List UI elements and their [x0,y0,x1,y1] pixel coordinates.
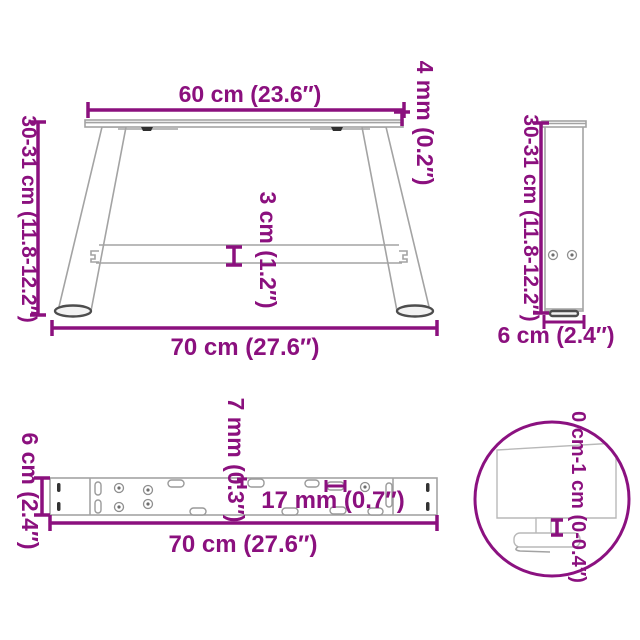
detail-range-label: 0 cm-1 cm (0-0.4″) [567,411,589,583]
detail-view: 0 cm-1 cm (0-0.4″) [475,411,629,583]
front-plate-screw-right [331,127,343,131]
front-top-plate [85,120,403,131]
top-view-slot-height-label: 7 mm (0.3″) [223,398,249,523]
front-left-leg [58,127,126,311]
side-leg-body [545,126,583,311]
side-depth-label: 6 cm (2.4″) [497,322,614,348]
front-left-foot [55,306,91,317]
side-view: 30-31 cm (11.8-12.2″) 6 cm (2.4″) [497,114,614,348]
product-dimension-diagram: 60 cm (23.6″) 4 mm (0.2″) 30-31 cm (11.8… [0,0,640,640]
front-top-width-label: 60 cm (23.6″) [179,81,322,107]
detail-leg-bottom [497,443,616,518]
top-view-length-label: 70 cm (27.6″) [169,531,318,558]
side-height-label: 30-31 cm (11.8-12.2″) [519,114,542,321]
front-view: 60 cm (23.6″) 4 mm (0.2″) 30-31 cm (11.8… [17,61,438,361]
front-crossbar-height-label: 3 cm (1.2″) [255,191,281,308]
top-view-depth-label: 6 cm (2.4″) [17,432,43,549]
diagram-canvas: 60 cm (23.6″) 4 mm (0.2″) 30-31 cm (11.8… [0,0,640,640]
top-view: 6 cm (2.4″) 7 mm (0.3″) 17 mm (0.7″) 70 … [17,398,437,558]
front-height-label: 30-31 cm (11.8-12.2″) [17,115,40,322]
front-plate-screw-left [141,127,153,131]
front-plate-thickness-label: 4 mm (0.2″) [412,61,438,186]
front-bottom-width-label: 70 cm (27.6″) [171,334,320,361]
detail-foot-shadow [516,547,550,552]
front-crossbar [91,245,407,263]
top-view-slot-width-label: 17 mm (0.7″) [261,487,405,514]
front-right-foot [397,306,433,317]
